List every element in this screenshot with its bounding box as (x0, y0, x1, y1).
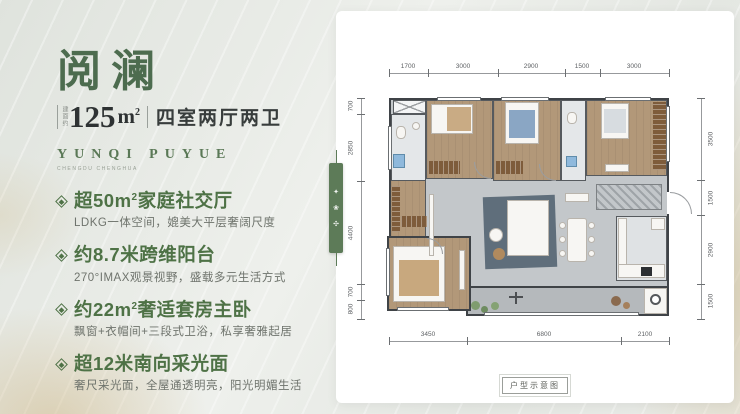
bed-blanket (604, 109, 626, 133)
dim-tick (389, 69, 390, 77)
feature-item: 约8.7米跨维阳台 270°IMAX观景视野，盛载多元生活方式 (57, 245, 325, 284)
dim-tick (565, 69, 566, 77)
dim-tick (697, 319, 705, 320)
dim-tick (697, 180, 705, 181)
dresser (605, 164, 629, 172)
area-prefix: 建面约 (61, 106, 67, 127)
diamond-bullet-icon (55, 303, 68, 316)
feature-desc: 奢尺采光面，全屋通透明亮，阳光明媚生活 (74, 377, 325, 393)
page-background: 阅澜 建面约 125 m2 四室两厅两卫 YUNQI PUYUE CHENGDU… (0, 0, 740, 414)
dim-tick (697, 98, 705, 99)
sparkle-icon: ✦ (333, 189, 339, 196)
area-unit: m2 (118, 104, 141, 129)
cabinet (401, 216, 427, 227)
basket (623, 302, 630, 309)
dim-label: 2100 (638, 331, 652, 338)
dim-tick (467, 337, 468, 345)
bed-blanket (447, 107, 471, 131)
diamond-bullet-icon (55, 249, 68, 262)
dim-label: 6800 (537, 331, 551, 338)
feature-item: 约22m2奢适套房主卧 飘窗+衣帽间+三段式卫浴，私享奢雅起居 (57, 300, 325, 339)
dim-label: 800 (348, 304, 355, 315)
room-bathroom-1 (391, 114, 426, 181)
layout-text: 四室两厅两卫 (156, 103, 282, 130)
window (386, 248, 390, 296)
dim-label: 1700 (401, 63, 415, 70)
feature-desc: 飘窗+衣帽间+三段式卫浴，私享奢雅起居 (74, 323, 325, 339)
dim-tick (428, 69, 429, 77)
feature-item: 超12米南向采光面 奢尺采光面，全屋通透明亮，阳光明媚生活 (57, 354, 325, 393)
window (501, 97, 549, 101)
feature-desc: LDKG一体空间，媲美大平层奢阔尺度 (74, 214, 325, 230)
feature-desc: 270°IMAX观景视野，盛载多元生活方式 (74, 269, 325, 285)
dim-label: 1500 (708, 191, 715, 205)
dim-label: 2850 (348, 141, 355, 155)
dim-tick (357, 284, 365, 285)
feature-title: 超12米南向采光面 (74, 354, 229, 374)
dim-tick (621, 337, 622, 345)
sofa (507, 200, 549, 256)
dim-line-left (361, 98, 362, 319)
entry-mat (596, 184, 662, 210)
diamond-bullet-icon (55, 195, 68, 208)
dim-label: 1500 (708, 294, 715, 308)
subtitle-en: YUNQI PUYUE (57, 147, 325, 163)
chair (559, 236, 566, 243)
plant (471, 301, 480, 310)
sink (412, 122, 420, 130)
dim-tick (669, 69, 670, 77)
feature-title: 约22m2奢适套房主卧 (74, 300, 252, 320)
diamond-bullet-icon (55, 358, 68, 371)
subtitle-location: CHENGDU CHENGHUA (57, 166, 325, 172)
dim-line-bottom (389, 341, 669, 342)
dim-line-top (389, 73, 669, 74)
dim-label: 3000 (456, 63, 470, 70)
dim-tick (669, 337, 670, 345)
divider-bar (147, 106, 148, 128)
divider-bar (57, 105, 58, 129)
feature-title: 约8.7米跨维阳台 (74, 245, 215, 265)
shower (393, 154, 405, 168)
floorplan-drawing (389, 98, 669, 319)
flower-icon: ❀ (333, 205, 339, 212)
cooktop (641, 267, 652, 276)
dim-label: 3000 (627, 63, 641, 70)
feature-list: 超50m2家庭社交厅 LDKG一体空间，媲美大平层奢阔尺度 约8.7米跨维阳台 … (57, 191, 325, 393)
dim-label: 3500 (708, 132, 715, 146)
washing-machine (650, 294, 661, 305)
page-title: 阅澜 (57, 50, 325, 94)
feature-item: 超50m2家庭社交厅 LDKG一体空间，媲美大平层奢阔尺度 (57, 191, 325, 230)
toilet (396, 126, 406, 139)
toilet (567, 112, 577, 124)
bed-blanket (509, 110, 535, 138)
chair (588, 236, 595, 243)
window (437, 97, 481, 101)
dim-tick (389, 337, 390, 345)
area-value: 125 (69, 101, 116, 132)
dining-table (567, 218, 587, 262)
dim-line-right (701, 98, 702, 319)
marketing-panel: 阅澜 建面约 125 m2 四室两厅两卫 YUNQI PUYUE CHENGDU… (57, 50, 325, 408)
dim-label: 700 (348, 101, 355, 112)
dim-tick (357, 98, 365, 99)
chair (588, 250, 595, 257)
dim-label: 3450 (421, 331, 435, 338)
washbasin (566, 156, 577, 167)
chair (559, 222, 566, 229)
dim-tick (357, 300, 365, 301)
floorplan-card: ✦ ❀ ✣ 1700 3000 2900 1500 3000 3450 6800… (336, 11, 734, 403)
dim-label: 4400 (348, 226, 355, 240)
elevator-shaft (393, 100, 426, 114)
dim-label: 2900 (524, 63, 538, 70)
armchair (489, 228, 503, 242)
dim-tick (357, 114, 365, 115)
dim-label: 2900 (708, 243, 715, 257)
ornament-tab: ✦ ❀ ✣ (329, 163, 343, 253)
wardrobe (428, 161, 460, 174)
dim-label: 1500 (575, 63, 589, 70)
chair (588, 222, 595, 229)
cabinet (392, 186, 400, 232)
dim-tick (357, 181, 365, 182)
dim-tick (498, 69, 499, 77)
entry-door-arc (670, 192, 692, 214)
coffee-table (493, 248, 505, 260)
window (484, 312, 639, 316)
plant (491, 302, 499, 310)
sideboard (565, 193, 589, 202)
feature-title: 超50m2家庭社交厅 (74, 191, 233, 211)
chair (559, 250, 566, 257)
tv-console (459, 250, 465, 290)
basket (611, 296, 621, 306)
dim-tick (600, 69, 601, 77)
dim-tick (697, 215, 705, 216)
window (397, 307, 449, 311)
drying-rack (515, 292, 517, 304)
fridge (651, 218, 665, 230)
dim-tick (357, 319, 365, 320)
wardrobe (653, 102, 666, 170)
wardrobe (495, 161, 523, 174)
window (388, 126, 392, 170)
bed-blanket (399, 260, 439, 296)
dim-label: 700 (348, 287, 355, 298)
plan-caption: 户型示意图 (502, 377, 568, 394)
window (605, 97, 651, 101)
dim-tick (697, 284, 705, 285)
clover-icon: ✣ (333, 221, 339, 228)
area-line: 建面约 125 m2 四室两厅两卫 (57, 101, 325, 132)
window (666, 106, 670, 162)
